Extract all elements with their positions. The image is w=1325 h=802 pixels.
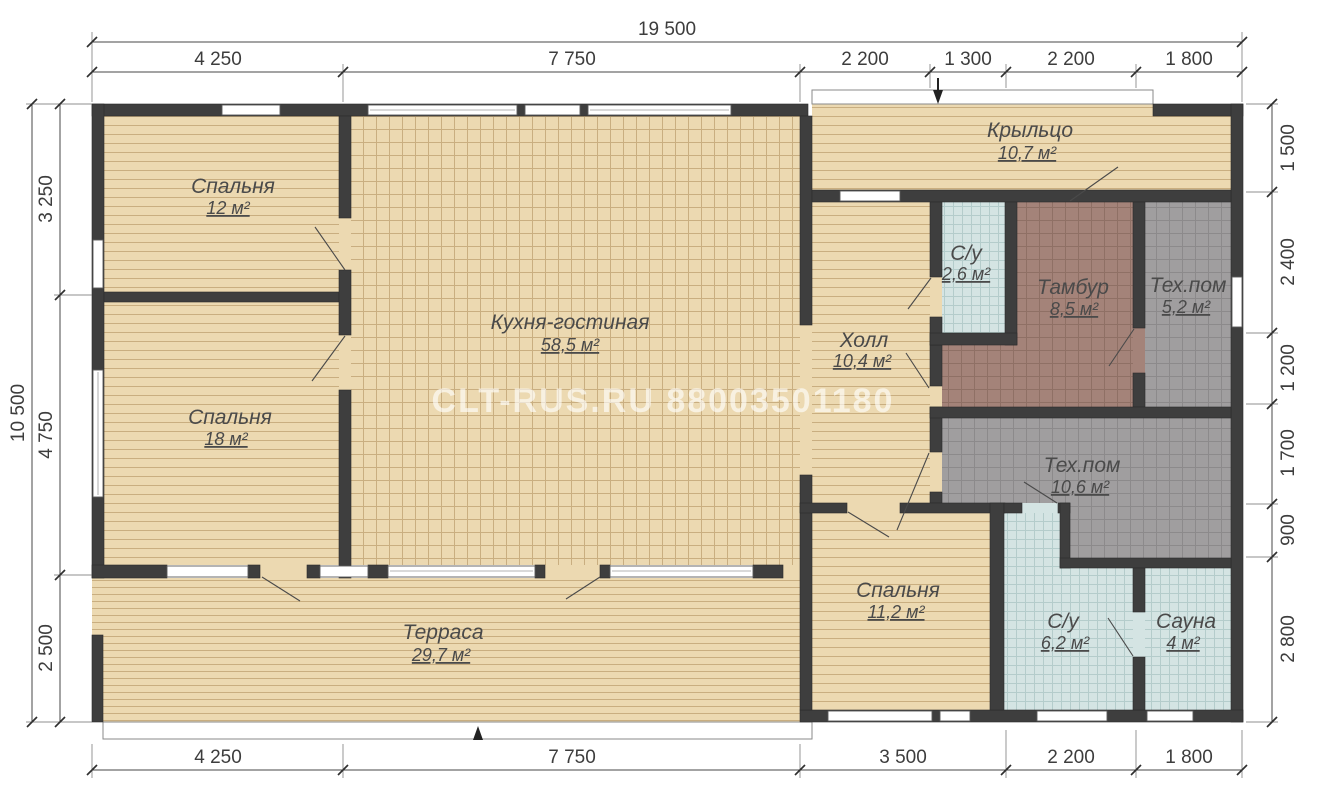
window (828, 711, 932, 721)
room-label: С/у (950, 242, 983, 265)
wall-segment (339, 270, 351, 335)
dim-top-total: 19 500 (638, 19, 696, 40)
wall-bathroom-small-bottom (930, 333, 1017, 345)
door-opening (783, 565, 800, 578)
room-label: Крыльцо (987, 119, 1073, 142)
room-area: 10,6 м² (1051, 477, 1110, 497)
room-area: 5,2 м² (1162, 297, 1211, 317)
dim-top-3: 1 300 (944, 49, 992, 70)
window (1232, 277, 1242, 327)
wall-segment (800, 503, 847, 513)
window (525, 105, 580, 115)
room-area: 2,6 м² (941, 264, 991, 284)
room-label: Тамбур (1037, 276, 1109, 299)
dim-left-1: 4 750 (36, 411, 57, 459)
dim-top-5: 1 800 (1165, 49, 1213, 70)
wall-bedroom11-right (990, 503, 1004, 710)
wall-segment (92, 565, 167, 578)
wall-exterior-left (92, 104, 104, 578)
room-area: 29,7 м² (411, 645, 471, 665)
window (940, 711, 970, 721)
window (167, 566, 248, 577)
room-area: 11,2 м² (867, 602, 925, 622)
window (222, 105, 280, 115)
wall-porch-top (1153, 104, 1243, 116)
wall-segment (248, 565, 260, 578)
window (1037, 711, 1107, 721)
wall-segment (1133, 373, 1145, 407)
room-label: Тех.пом (1044, 454, 1121, 477)
wall-segment (753, 565, 783, 578)
room-label: С/у (1047, 610, 1080, 633)
room-area: 6,2 м² (1041, 633, 1090, 653)
room-label: Спальня (191, 175, 275, 198)
wall-tambour-bottom (930, 407, 1231, 418)
dim-bottom-3: 2 200 (1047, 747, 1095, 768)
wall-segment (1005, 202, 1017, 345)
wall-segment (930, 202, 942, 277)
room-area: 10,4 м² (833, 351, 892, 371)
window (388, 566, 535, 577)
door-opening (339, 335, 351, 390)
dim-bottom-2: 3 500 (879, 747, 927, 768)
dim-right-1: 2 400 (1278, 238, 1299, 286)
wall-segment (900, 503, 1005, 513)
dim-top-4: 2 200 (1047, 49, 1095, 70)
entrance-stoop (812, 90, 1153, 104)
door-opening (1133, 612, 1145, 657)
door-opening (930, 452, 942, 492)
wall-segment (930, 345, 942, 386)
dim-right-0: 1 500 (1278, 124, 1299, 172)
floor-tambour-lower (942, 345, 1133, 407)
window (840, 191, 900, 201)
dim-top-2: 2 200 (841, 49, 889, 70)
dim-top-1: 7 750 (548, 49, 596, 70)
door-opening (930, 386, 942, 407)
dim-left-total: 10 500 (8, 384, 29, 442)
window (320, 566, 368, 577)
door-opening (847, 503, 900, 513)
window (610, 566, 753, 577)
door-opening (1133, 328, 1145, 373)
wall-segment (307, 565, 320, 578)
wall-segment (600, 565, 610, 578)
dim-top-0: 4 250 (194, 49, 242, 70)
wall-bedrooms-divider (104, 292, 339, 302)
wall-segment (368, 565, 388, 578)
dim-right-4: 900 (1278, 514, 1299, 546)
watermark-text: CLT-RUS.RU 88003501180 (432, 382, 895, 420)
window (1147, 711, 1193, 721)
door-opening (545, 565, 600, 578)
dim-left-0: 3 250 (36, 175, 57, 223)
floor-plan: 19 500 4 250 7 750 2 200 1 300 2 200 1 8… (0, 0, 1325, 802)
door-opening (930, 277, 942, 317)
room-area: 58,5 м² (541, 335, 600, 355)
wall-segment (339, 116, 351, 218)
room-label: Холл (839, 329, 889, 352)
wall-exterior-right (1231, 104, 1243, 722)
door-opening (1022, 503, 1058, 513)
wall-segment (339, 390, 351, 578)
wall-segment (535, 565, 545, 578)
door-opening (260, 565, 307, 578)
dim-right-3: 1 700 (1278, 429, 1299, 477)
dim-left-2: 2 500 (36, 624, 57, 672)
wall-kitchen-hall-top (800, 116, 812, 325)
wall-segment (1133, 202, 1145, 328)
room-label: Тех.пом (1150, 274, 1227, 297)
wall-segment (1004, 503, 1022, 513)
room-label: Терраса (402, 621, 483, 644)
wall-segment (930, 492, 942, 503)
room-label: Кухня-гостиная (491, 311, 650, 334)
wall-terrace-left (92, 635, 103, 722)
dim-right-2: 1 200 (1278, 344, 1299, 392)
room-label: Спальня (856, 579, 940, 602)
room-area: 18 м² (204, 429, 248, 449)
dim-bottom-1: 7 750 (548, 747, 596, 768)
dim-right-5: 2 800 (1278, 615, 1299, 663)
wall-tech-big-bottom (1060, 558, 1231, 568)
room-label: Спальня (188, 406, 272, 429)
room-area: 12 м² (206, 198, 250, 218)
terrace-step (103, 722, 812, 739)
room-area: 10,7 м² (998, 143, 1057, 163)
floor-tech-big-lower (1070, 503, 1231, 558)
room-area: 4 м² (1166, 633, 1200, 653)
floor-plan-page: 19 500 4 250 7 750 2 200 1 300 2 200 1 8… (0, 0, 1325, 802)
wall-segment (1133, 657, 1145, 710)
dim-bottom-0: 4 250 (194, 747, 242, 768)
room-label: Сауна (1156, 610, 1216, 633)
room-area: 8,5 м² (1050, 299, 1099, 319)
window (93, 240, 103, 288)
door-opening (339, 218, 351, 270)
wall-segment (1133, 568, 1145, 612)
dim-bottom-4: 1 800 (1165, 747, 1213, 768)
